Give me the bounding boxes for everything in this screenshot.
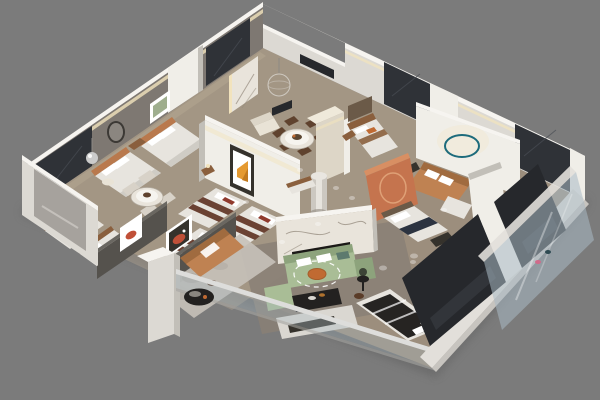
black-round-table — [184, 289, 214, 306]
orange-cushion — [308, 269, 326, 280]
specular-dot — [441, 208, 447, 212]
stool — [102, 179, 114, 186]
specular-dot — [315, 222, 321, 226]
apartment-floorplan-render — [0, 0, 600, 400]
side-table-stem — [362, 279, 364, 291]
art-dot — [183, 230, 186, 233]
round-mirror-icon — [108, 122, 124, 142]
wall-glow — [437, 125, 489, 157]
table-tray — [189, 291, 201, 297]
lounge-coffee-table — [184, 289, 214, 306]
centerpiece — [143, 193, 151, 198]
specular-dot — [297, 168, 303, 172]
specular-dot — [333, 186, 339, 190]
lamp-highlight — [88, 154, 92, 158]
cylinder-top — [311, 172, 327, 180]
glass-reflection-pink — [535, 260, 541, 264]
specular-dot — [410, 260, 416, 264]
stool — [354, 293, 364, 299]
marble-edge-light — [229, 74, 232, 114]
specular-dot — [243, 200, 249, 204]
specular-dot — [349, 196, 355, 200]
chrome-ball-lamp-icon — [86, 152, 98, 164]
plant-icon — [359, 268, 367, 276]
specular-dot — [379, 266, 387, 271]
table-decor — [293, 135, 296, 138]
glass-reflection-teal — [545, 250, 551, 254]
table-lamp — [206, 164, 210, 168]
cylinder-highlight — [316, 176, 322, 213]
table-decor — [203, 295, 207, 299]
wall-pillar-side — [198, 45, 203, 93]
table-dish — [308, 296, 316, 300]
render-canvas — [0, 0, 600, 400]
table-decor — [319, 293, 325, 297]
specular-dot — [410, 254, 418, 259]
specular-dot — [279, 240, 285, 244]
pillar-side — [174, 253, 180, 337]
specular-dot — [261, 212, 269, 217]
white-pillar — [148, 253, 174, 343]
